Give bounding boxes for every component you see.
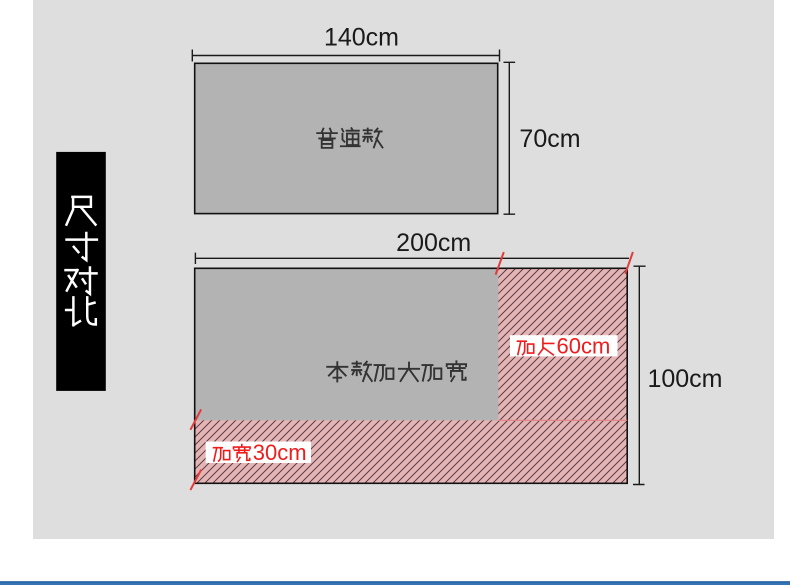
svg-text:30cm: 30cm bbox=[253, 440, 307, 465]
svg-text:70cm: 70cm bbox=[519, 125, 580, 153]
svg-text:100cm: 100cm bbox=[647, 365, 722, 393]
svg-text:140cm: 140cm bbox=[324, 24, 399, 52]
svg-text:200cm: 200cm bbox=[396, 229, 471, 257]
svg-text:60cm: 60cm bbox=[557, 334, 611, 359]
